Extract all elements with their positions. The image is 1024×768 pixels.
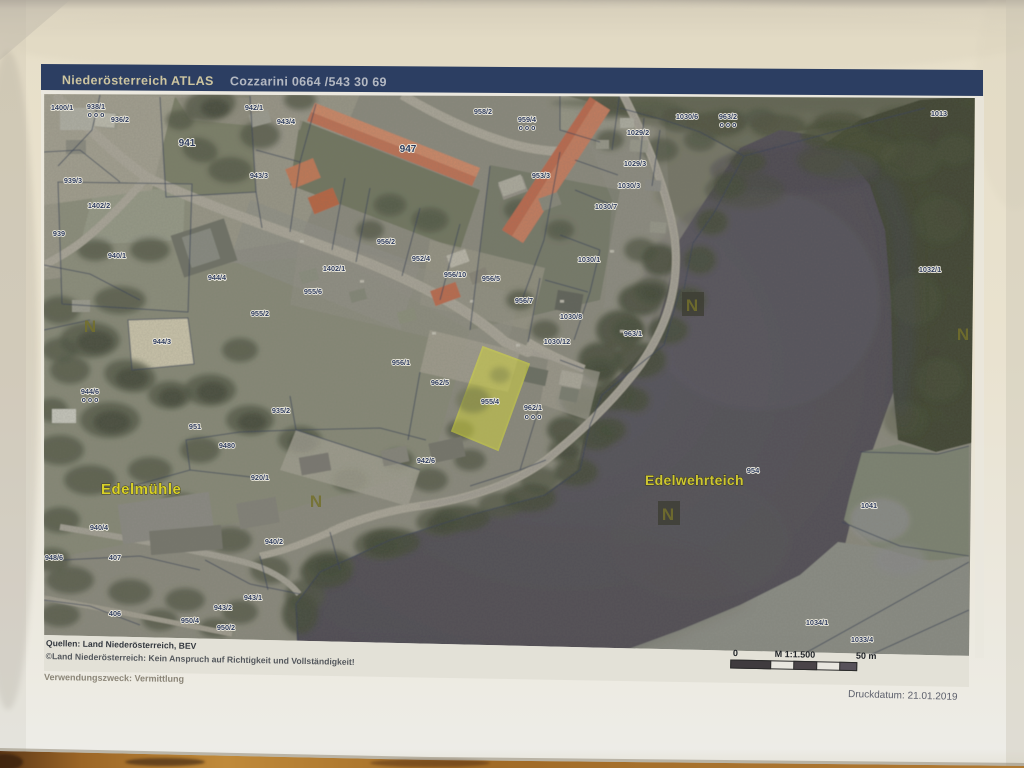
svg-text:947: 947 — [400, 144, 417, 155]
svg-text:956/1: 956/1 — [392, 358, 410, 367]
svg-text:955/6: 955/6 — [304, 287, 322, 296]
svg-text:Cozzarini 0664 /543 30 69: Cozzarini 0664 /543 30 69 — [230, 74, 387, 89]
svg-text:940/1: 940/1 — [108, 251, 126, 260]
svg-text:942/6: 942/6 — [417, 456, 435, 465]
svg-text:o o o: o o o — [525, 414, 542, 421]
svg-text:o o o: o o o — [88, 112, 105, 119]
svg-text:1034/1: 1034/1 — [806, 618, 828, 627]
svg-text:955/4: 955/4 — [481, 397, 500, 406]
svg-text:o o o: o o o — [519, 125, 536, 132]
svg-text:1033/4: 1033/4 — [851, 635, 874, 644]
svg-text:1030/1: 1030/1 — [578, 255, 600, 264]
svg-text:956/2: 956/2 — [377, 237, 395, 246]
svg-text:939: 939 — [53, 229, 65, 238]
svg-text:962/1: 962/1 — [524, 403, 542, 412]
svg-text:N: N — [686, 296, 698, 315]
svg-text:958/2: 958/2 — [474, 107, 492, 116]
svg-text:941: 941 — [179, 138, 196, 149]
svg-text:1030/7: 1030/7 — [595, 202, 617, 211]
svg-text:953/3: 953/3 — [532, 171, 550, 180]
svg-text:939/3: 939/3 — [64, 176, 82, 185]
svg-text:962/5: 962/5 — [431, 378, 449, 387]
svg-text:920/1: 920/1 — [251, 473, 269, 482]
svg-text:940/4: 940/4 — [90, 523, 109, 532]
svg-text:963/1: 963/1 — [624, 329, 642, 338]
svg-text:1013: 1013 — [931, 109, 947, 118]
svg-text:943/1: 943/1 — [244, 593, 262, 602]
svg-text:9480: 9480 — [219, 441, 235, 450]
svg-text:1029/3: 1029/3 — [624, 159, 646, 168]
svg-text:M 1:1.500: M 1:1.500 — [775, 649, 816, 660]
svg-text:954: 954 — [747, 466, 760, 475]
svg-text:Edelmühle: Edelmühle — [101, 481, 181, 498]
svg-text:1030/6: 1030/6 — [676, 112, 698, 121]
svg-text:944/6: 944/6 — [81, 387, 99, 396]
svg-text:943/4: 943/4 — [277, 117, 296, 126]
svg-text:1029/2: 1029/2 — [627, 128, 649, 137]
svg-text:951: 951 — [189, 422, 201, 431]
svg-text:1030/3: 1030/3 — [618, 181, 640, 190]
svg-text:407: 407 — [109, 553, 121, 562]
svg-text:1402/1: 1402/1 — [323, 264, 345, 273]
svg-text:1400/1: 1400/1 — [51, 103, 73, 112]
svg-text:N: N — [957, 325, 969, 344]
svg-text:1032/1: 1032/1 — [919, 265, 941, 274]
svg-text:943/3: 943/3 — [250, 171, 268, 180]
svg-text:N: N — [662, 505, 674, 524]
svg-text:955/2: 955/2 — [251, 309, 269, 318]
svg-text:963/2: 963/2 — [719, 112, 737, 121]
svg-text:o o o: o o o — [720, 122, 737, 129]
svg-text:50 m: 50 m — [856, 651, 877, 661]
svg-text:956/10: 956/10 — [444, 270, 466, 279]
svg-text:959/4: 959/4 — [518, 115, 537, 124]
svg-text:1030/12: 1030/12 — [544, 337, 570, 346]
svg-text:938/1: 938/1 — [87, 102, 105, 111]
svg-text:N: N — [310, 492, 322, 511]
svg-text:942/1: 942/1 — [245, 103, 263, 112]
svg-text:Verwendungszweck: Vermittlung: Verwendungszweck: Vermittlung — [44, 672, 184, 684]
svg-text:956/5: 956/5 — [482, 274, 500, 283]
svg-text:950/2: 950/2 — [217, 623, 235, 632]
svg-text:944/3: 944/3 — [153, 337, 171, 346]
svg-text:406: 406 — [109, 609, 121, 618]
svg-text:940/2: 940/2 — [265, 537, 283, 546]
svg-text:Niederösterreich ATLAS: Niederösterreich ATLAS — [62, 73, 214, 88]
svg-text:1402/2: 1402/2 — [88, 201, 110, 210]
svg-text:1041: 1041 — [861, 501, 877, 510]
svg-text:Edelwehrteich: Edelwehrteich — [645, 472, 744, 488]
svg-text:944/4: 944/4 — [208, 273, 227, 282]
svg-text:936/2: 936/2 — [111, 115, 129, 124]
svg-text:o o o: o o o — [82, 397, 99, 404]
svg-text:943/2: 943/2 — [214, 603, 232, 612]
svg-text:935/2: 935/2 — [272, 406, 290, 415]
svg-text:0: 0 — [733, 648, 738, 658]
svg-text:950/4: 950/4 — [181, 616, 200, 625]
svg-text:1030/8: 1030/8 — [560, 312, 582, 321]
svg-text:948/6: 948/6 — [45, 553, 63, 562]
svg-text:956/7: 956/7 — [515, 296, 533, 305]
svg-text:952/4: 952/4 — [412, 254, 431, 263]
svg-text:N: N — [84, 317, 96, 336]
